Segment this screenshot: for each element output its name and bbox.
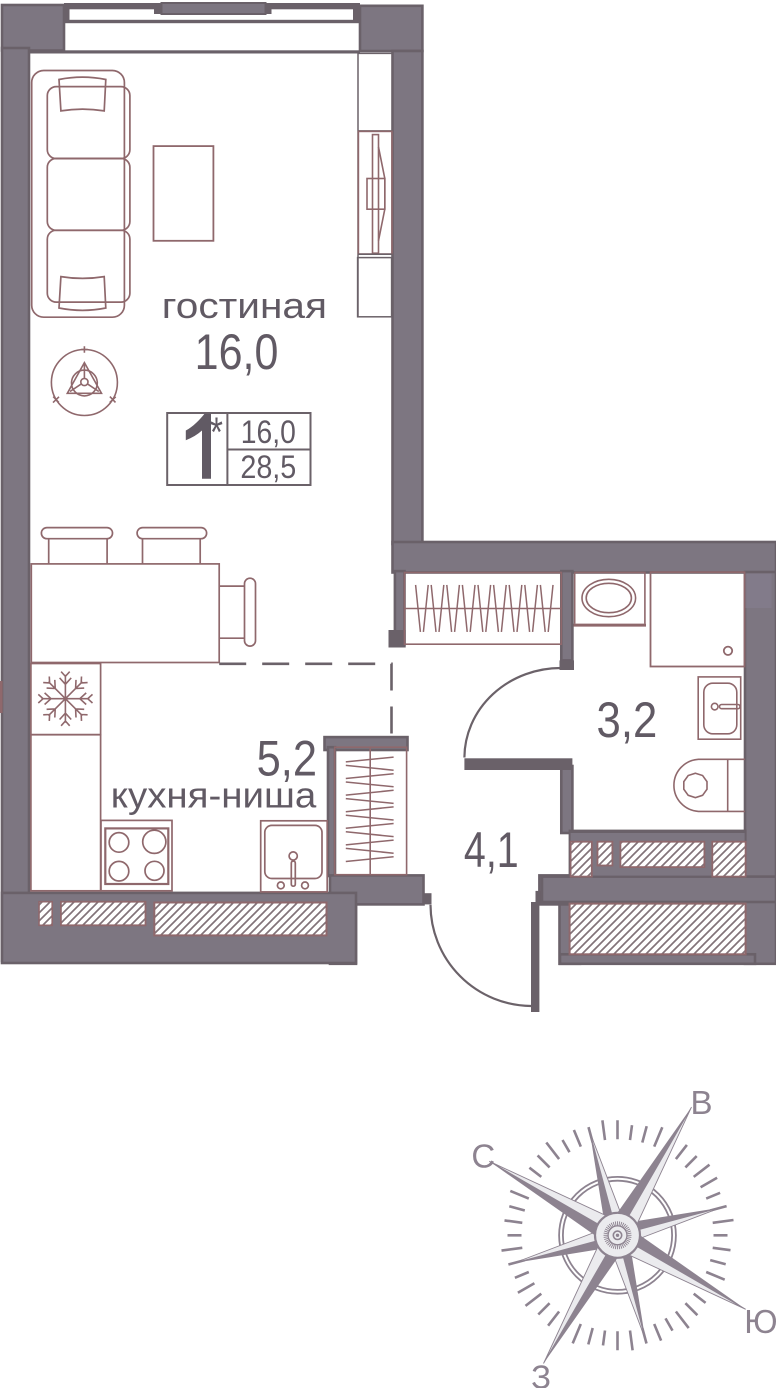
svg-text:3,2: 3,2	[597, 692, 658, 749]
svg-text:Ю: Ю	[744, 1303, 776, 1340]
svg-text:4,1: 4,1	[464, 821, 519, 878]
svg-text:16,0: 16,0	[195, 324, 279, 380]
svg-text:З: З	[531, 1359, 551, 1388]
svg-text:16,0: 16,0	[241, 415, 296, 450]
svg-text:гостиная: гостиная	[162, 286, 327, 327]
svg-text:В: В	[690, 1084, 712, 1121]
svg-text:С: С	[471, 1137, 495, 1174]
svg-text:*: *	[210, 409, 223, 455]
svg-text:28,5: 28,5	[240, 450, 296, 486]
svg-text:кухня-ниша: кухня-ниша	[111, 775, 317, 816]
